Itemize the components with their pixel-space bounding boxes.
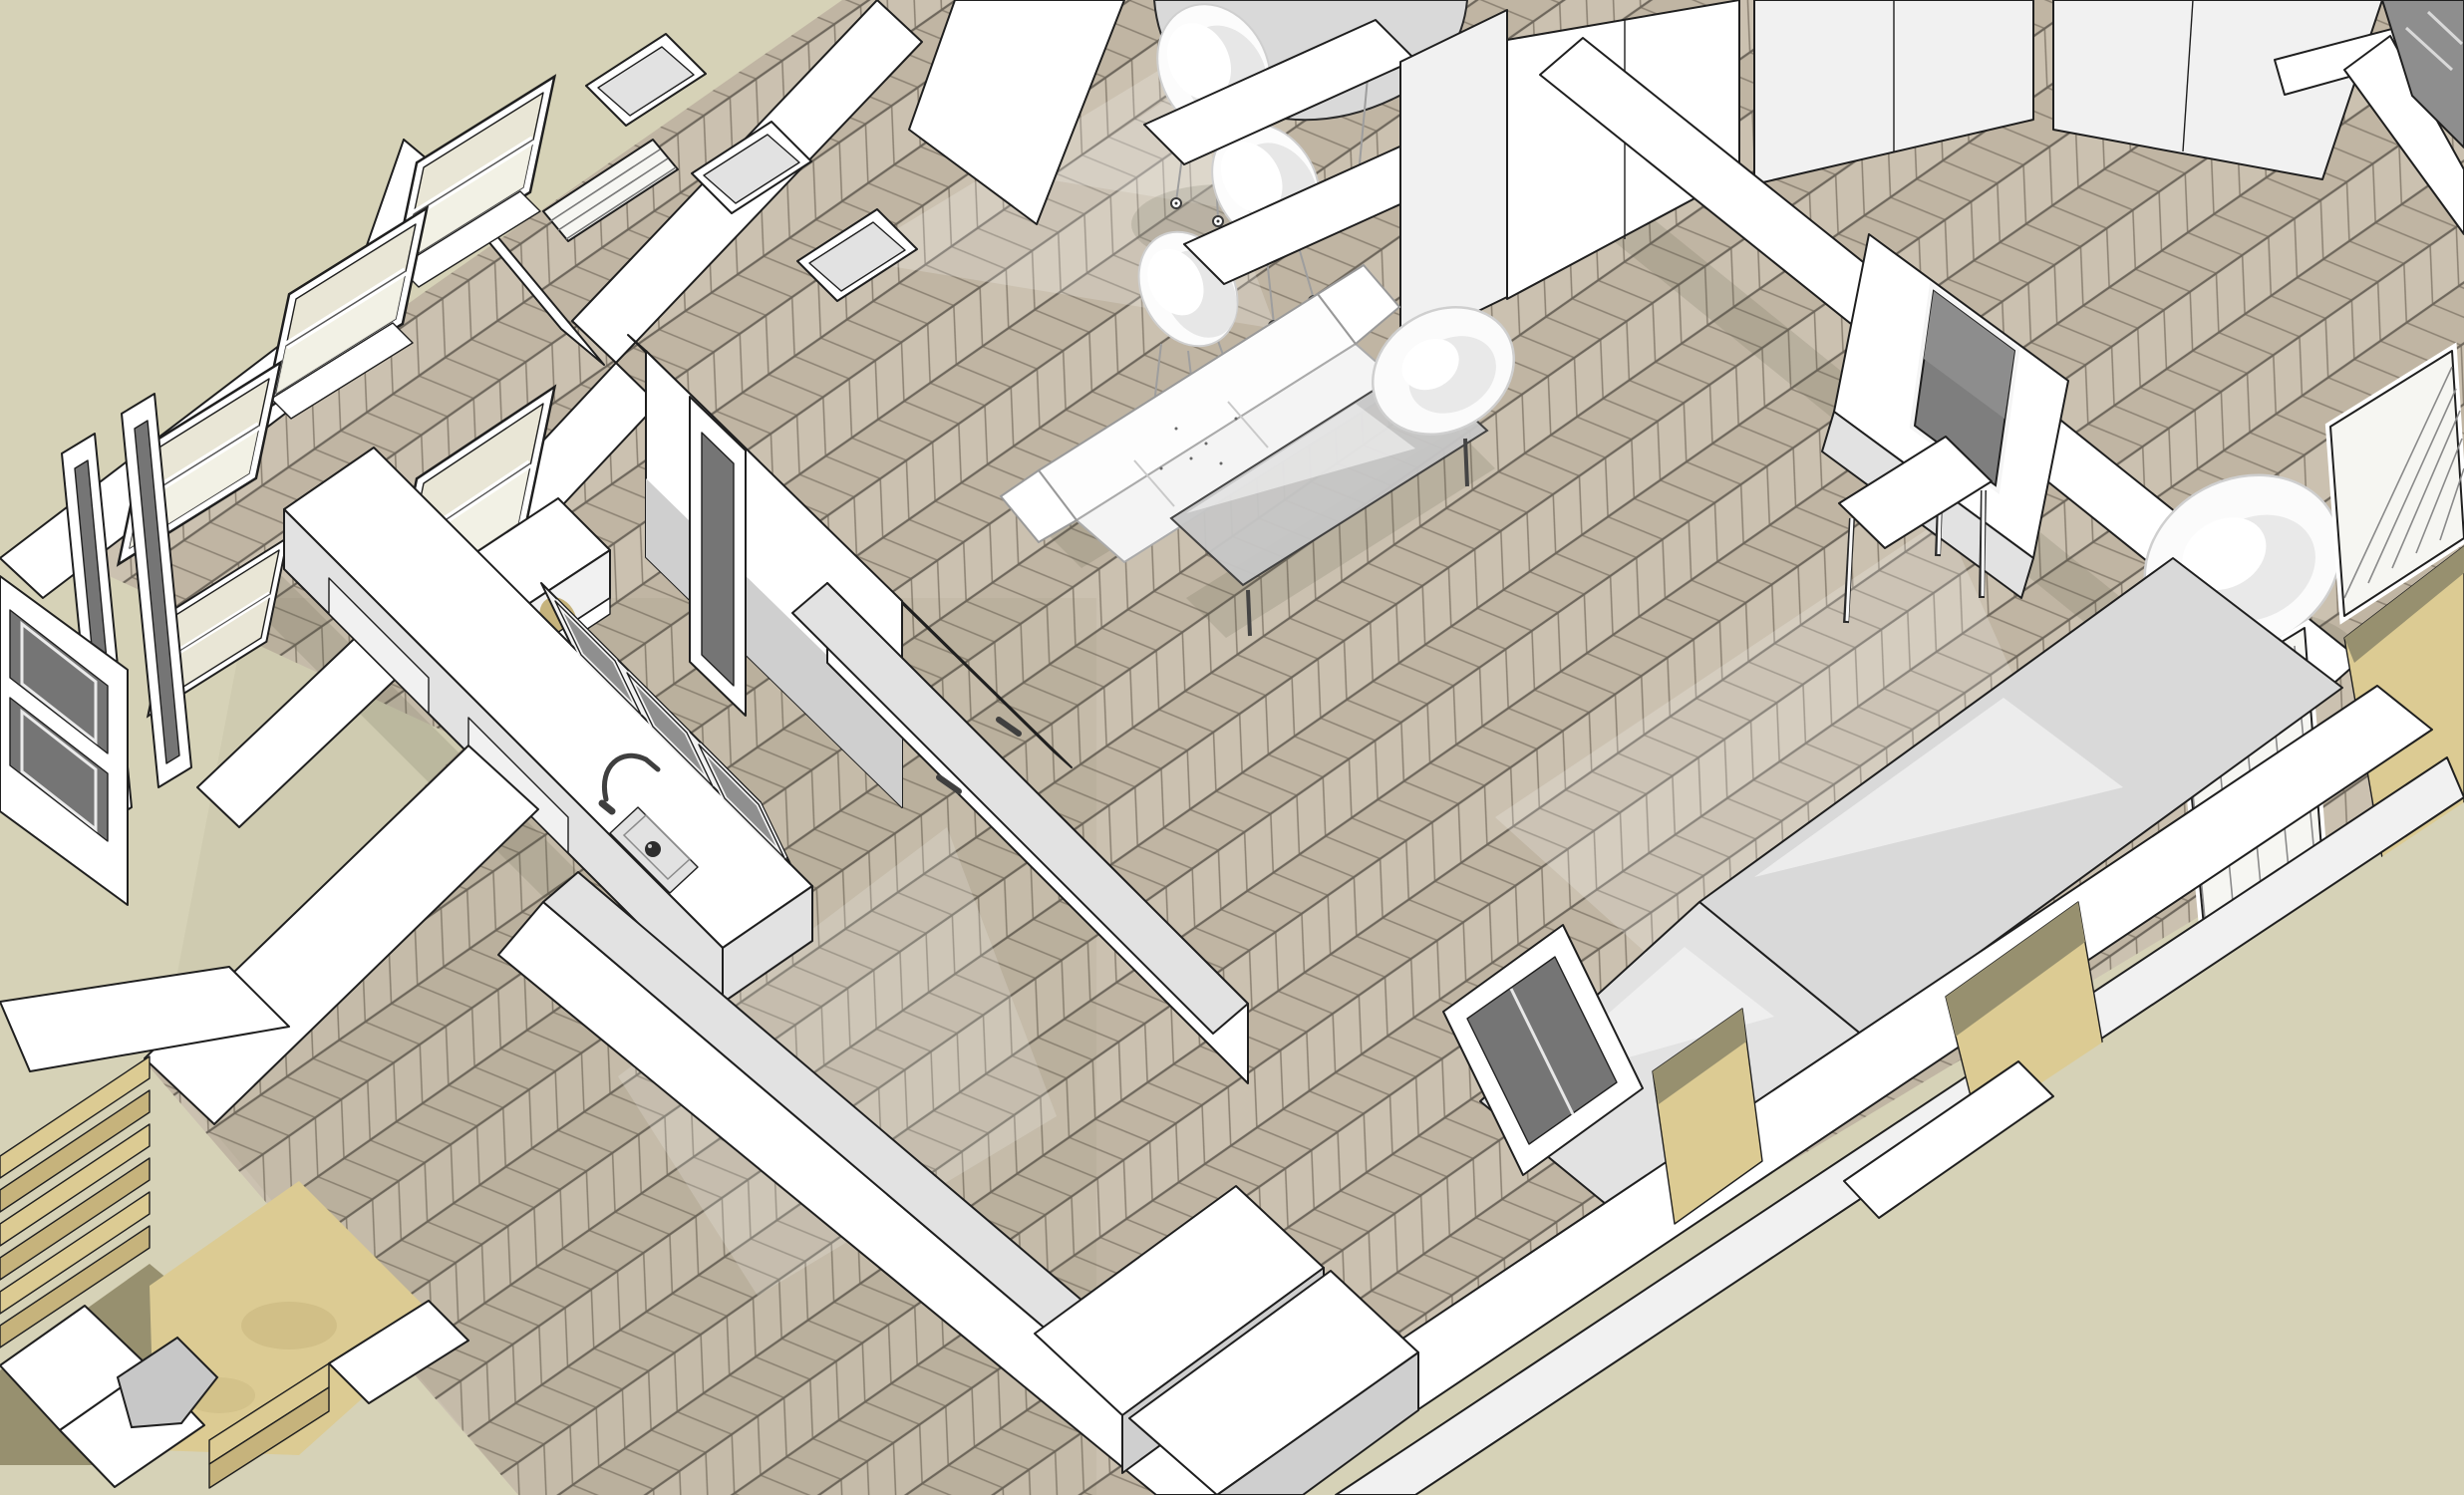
model-viewport[interactable] — [0, 0, 2464, 1495]
model-canvas[interactable] — [0, 0, 2464, 1495]
interior-door[interactable] — [690, 397, 746, 716]
